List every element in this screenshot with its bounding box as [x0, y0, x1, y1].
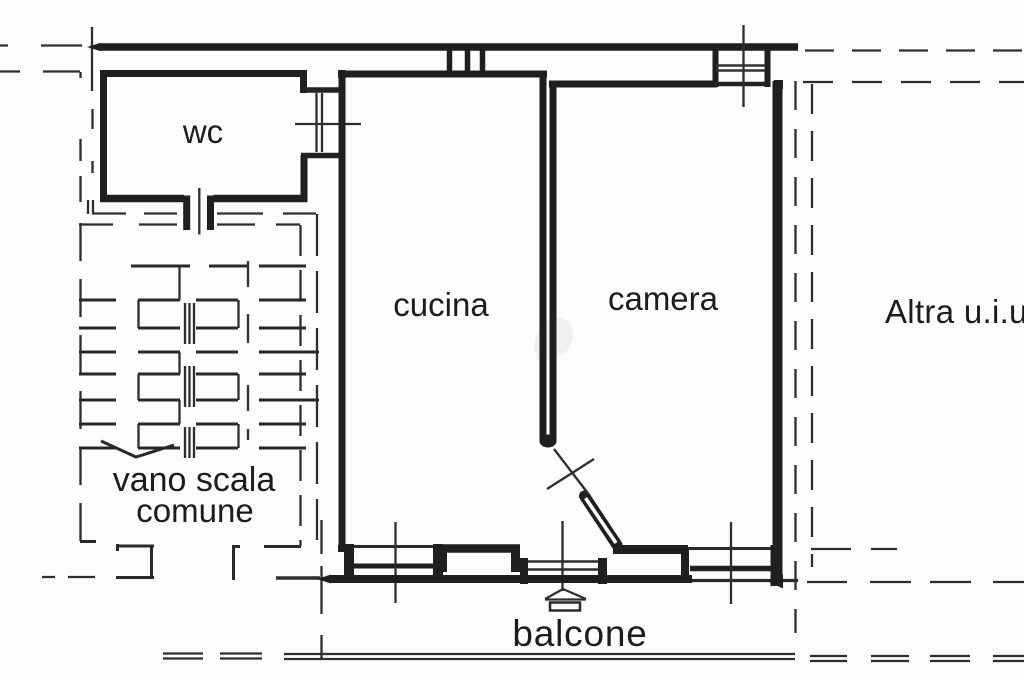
svg-text:balcone: balcone — [512, 613, 647, 654]
svg-text:camera: camera — [608, 280, 719, 317]
svg-text:cucina: cucina — [393, 286, 489, 323]
svg-text:comune: comune — [136, 492, 253, 529]
svg-text:Altra u.i.u: Altra u.i.u — [885, 293, 1024, 330]
svg-text:wc: wc — [182, 113, 223, 150]
